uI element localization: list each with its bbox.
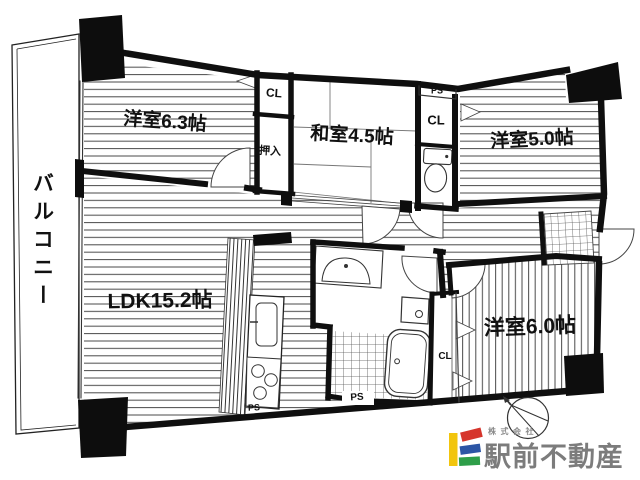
pillar <box>566 62 622 103</box>
toilet <box>422 148 452 192</box>
kitchen-sink <box>256 303 277 346</box>
logo-bar-yellow <box>449 433 458 466</box>
oshiire-label: 押入 <box>259 146 282 158</box>
floorplan-page: バルコニー 洋室6.3帖 和室4.5帖 洋室5.0帖 LDK15.2帖 洋室6.… <box>0 0 640 480</box>
washbasin <box>314 246 383 288</box>
balcony-label: バルコニー <box>32 172 53 312</box>
kitchen-stove <box>246 357 281 408</box>
floorplan-drawing <box>0 0 640 480</box>
ps-label-top: PS <box>431 87 443 96</box>
closet-label-top: CL <box>266 86 283 99</box>
pillar <box>78 397 128 458</box>
logo-company-name: 駅前不動産 <box>484 435 624 474</box>
logo-bar-green <box>459 456 480 466</box>
room-label-western3: 洋室6.0帖 <box>484 315 577 339</box>
closet-label-lower: CL <box>438 352 451 362</box>
room-label-ldk: LDK15.2帖 <box>107 290 212 313</box>
room-label-western2: 洋室5.0帖 <box>490 128 574 151</box>
logo-mark <box>449 427 483 466</box>
pillar <box>564 353 604 396</box>
pillar <box>79 15 125 82</box>
ps-label-bath: PS <box>350 393 364 404</box>
washing-machine-pan <box>401 297 429 324</box>
room-label-japanese: 和室4.5帖 <box>310 124 394 147</box>
front-door-arc <box>599 229 634 264</box>
ps-label-kitchen: PS <box>248 403 260 413</box>
logo-bar-blue <box>460 444 481 455</box>
bathtub <box>384 329 432 399</box>
logo-bar-red <box>460 427 483 441</box>
closet-label-right: CL <box>427 114 444 127</box>
